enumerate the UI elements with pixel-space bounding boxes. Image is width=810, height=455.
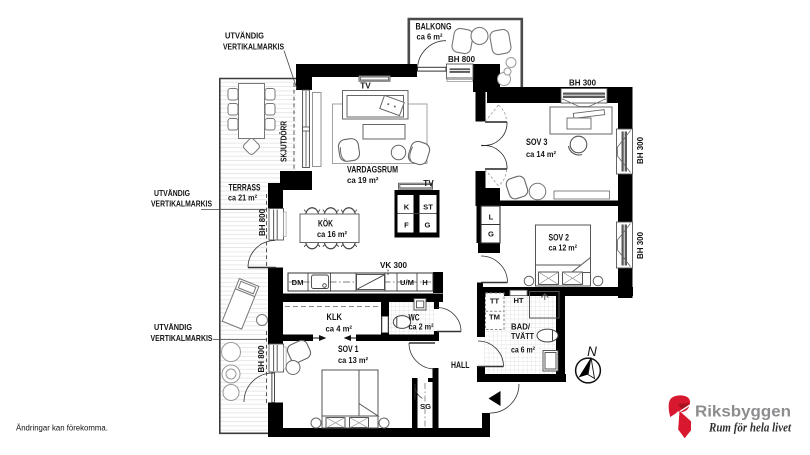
svg-text:ca 14 m²: ca 14 m² bbox=[526, 150, 556, 159]
svg-text:UTVÄNDIG: UTVÄNDIG bbox=[225, 31, 264, 41]
svg-text:SOV 3: SOV 3 bbox=[526, 137, 548, 147]
svg-text:KÖK: KÖK bbox=[318, 219, 333, 229]
svg-text:WC: WC bbox=[409, 313, 420, 323]
svg-text:Ändringar kan förekomma.: Ändringar kan förekomma. bbox=[16, 424, 108, 433]
svg-text:TV: TV bbox=[423, 179, 434, 188]
svg-text:VARDAGSRUM: VARDAGSRUM bbox=[347, 165, 398, 175]
svg-text:TM: TM bbox=[489, 313, 500, 322]
svg-text:SKJUTDÖRR: SKJUTDÖRR bbox=[279, 121, 289, 162]
svg-text:BALKONG: BALKONG bbox=[416, 22, 452, 32]
svg-text:ca 21 m²: ca 21 m² bbox=[228, 194, 257, 203]
svg-text:BH 800: BH 800 bbox=[448, 55, 475, 64]
svg-text:VERTIKALMARKIS: VERTIKALMARKIS bbox=[151, 334, 213, 343]
svg-text:HALL: HALL bbox=[451, 360, 470, 370]
svg-text:VK 300: VK 300 bbox=[380, 261, 407, 270]
svg-text:N: N bbox=[587, 344, 597, 359]
svg-text:ca 2 m²: ca 2 m² bbox=[409, 323, 434, 332]
svg-text:F: F bbox=[404, 221, 409, 230]
svg-text:BH 800: BH 800 bbox=[258, 209, 267, 236]
svg-text:G: G bbox=[425, 221, 431, 230]
svg-text:ST: ST bbox=[423, 203, 433, 212]
svg-text:K: K bbox=[404, 203, 410, 212]
svg-text:ca 13 m²: ca 13 m² bbox=[338, 356, 368, 365]
svg-text:BH 300: BH 300 bbox=[569, 79, 596, 88]
svg-text:TT: TT bbox=[490, 297, 500, 306]
svg-text:KLK: KLK bbox=[327, 312, 343, 322]
svg-text:SG: SG bbox=[420, 402, 431, 411]
svg-text:ca 16 m²: ca 16 m² bbox=[317, 230, 347, 239]
svg-text:BH 800: BH 800 bbox=[257, 345, 266, 372]
svg-text:H: H bbox=[422, 278, 427, 287]
svg-text:Rum för hela livet: Rum för hela livet bbox=[708, 421, 791, 435]
svg-text:TV: TV bbox=[360, 82, 371, 91]
svg-text:HT: HT bbox=[513, 296, 523, 305]
svg-text:UTVÄNDIG: UTVÄNDIG bbox=[154, 322, 192, 332]
svg-text:VERTIKALMARKIS: VERTIKALMARKIS bbox=[223, 43, 284, 52]
svg-text:ca 19 m²: ca 19 m² bbox=[347, 176, 379, 185]
svg-text:BH 300: BH 300 bbox=[636, 232, 645, 259]
svg-text:VERTIKALMARKIS: VERTIKALMARKIS bbox=[151, 200, 212, 209]
svg-text:Riksbyggen: Riksbyggen bbox=[695, 404, 791, 421]
svg-text:BAD/: BAD/ bbox=[511, 323, 531, 332]
svg-text:G: G bbox=[488, 230, 494, 239]
svg-text:ca 6 m²: ca 6 m² bbox=[511, 346, 535, 355]
svg-text:TERRASS: TERRASS bbox=[229, 183, 261, 193]
svg-text:SOV 1: SOV 1 bbox=[338, 344, 359, 354]
svg-text:DM: DM bbox=[292, 278, 304, 287]
svg-text:ca 6 m²: ca 6 m² bbox=[417, 33, 443, 42]
svg-text:SOV 2: SOV 2 bbox=[549, 233, 570, 243]
svg-text:BH 300: BH 300 bbox=[636, 137, 645, 164]
svg-text:ca 12 m²: ca 12 m² bbox=[549, 244, 578, 253]
svg-text:TVÄTT: TVÄTT bbox=[511, 331, 534, 341]
svg-text:UTVÄNDIG: UTVÄNDIG bbox=[154, 188, 190, 198]
svg-text:U/M: U/M bbox=[400, 278, 414, 287]
svg-text:ca 4 m²: ca 4 m² bbox=[326, 325, 353, 334]
svg-text:L: L bbox=[489, 213, 494, 222]
